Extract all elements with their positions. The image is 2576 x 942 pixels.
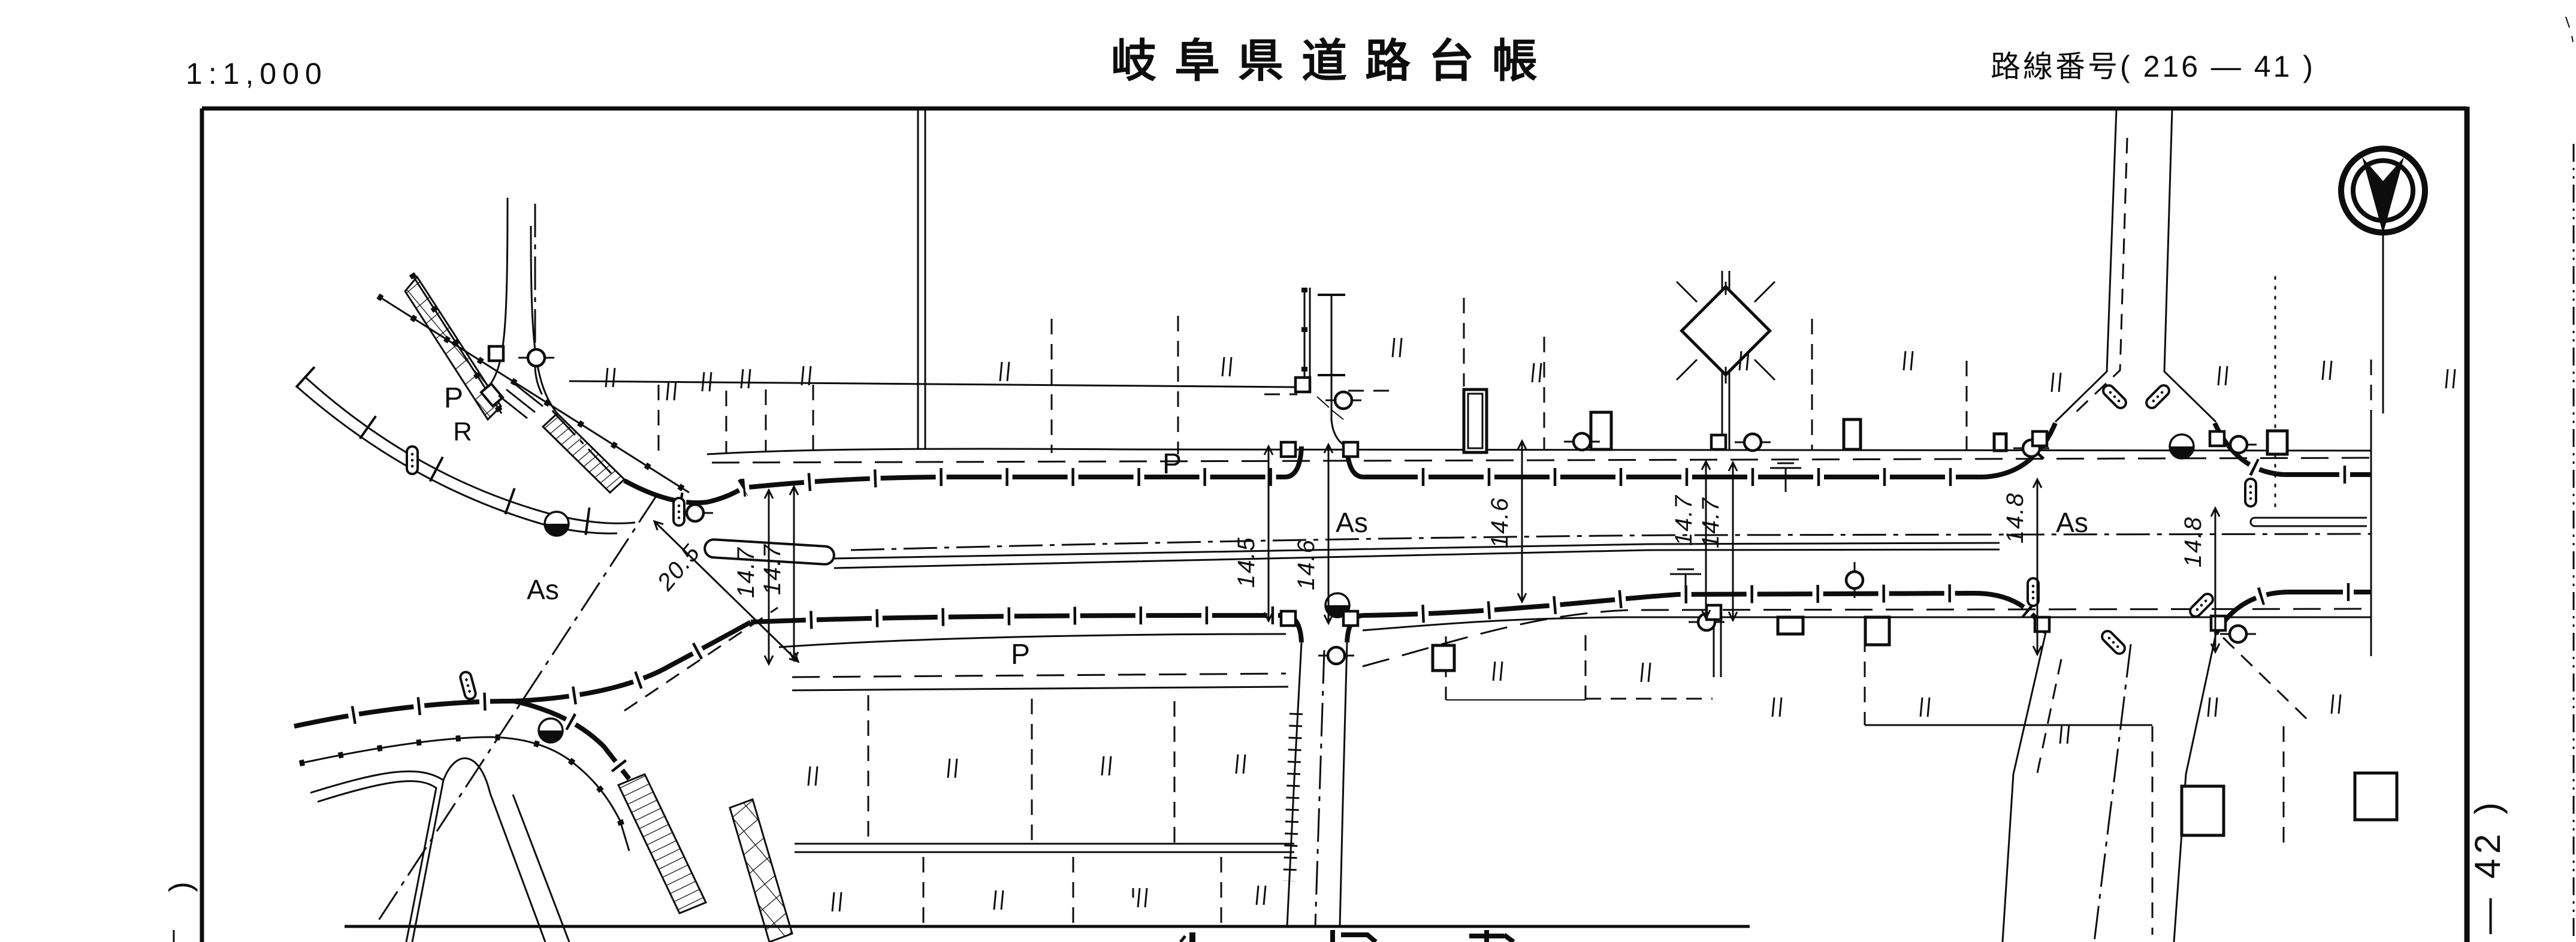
footpath-right-outer [513,795,569,942]
side-road-north-right-edge [1331,294,1347,446]
parcel-double-tick-mark [1493,662,1502,681]
surface-type-label: As [1336,507,1368,538]
pill-symbol [459,671,476,700]
surface-type-label: P [1011,639,1030,671]
page-title: 岐阜県道路台帳 [1111,36,1556,87]
culvert-diamond-symbol [1677,282,1775,384]
elevation-section: 14.5 [1233,446,1273,621]
elevation-value-label: 14.6 [1487,497,1513,548]
square-symbol [1295,378,1310,392]
junction-west [296,198,778,921]
parcel-double-tick-mark [1138,888,1147,907]
road-ledger-sheet: { "header": { "scale_label": "1:1,000", … [0,0,2576,942]
parcel-double-tick-mark [667,381,676,400]
parcel-double-tick-mark [2446,369,2455,388]
sidewalk-edge-bottom-west [779,634,1286,647]
cross-road-down-inner-dash [2037,659,2061,773]
parcel-double-tick-mark [994,890,1003,910]
side-road-north [1304,288,1347,446]
surface-type-label: P [444,382,463,414]
square-symbol [2210,431,2224,446]
southwest-branch [300,737,792,942]
building-outline [2182,786,2224,835]
strip-top-line-west [792,687,1288,690]
surface-type-label: As [527,574,559,605]
square-symbol [1343,442,1358,457]
road-centerline [851,534,2371,550]
route-number-label: 路線番号( 216 — 41 ) [1991,50,2315,83]
curb-junction-arc-ticks [514,622,751,701]
building-outline [1433,645,1454,671]
elevation-value-label: 14.7 [733,547,759,598]
parcel-double-tick-mark [2218,366,2227,385]
square-symbol [1281,611,1295,626]
half-circle-symbol [539,718,563,742]
sheet-number-note: — 42 ) [2468,798,2508,934]
cross-road-down-centerline [2094,644,2131,942]
parcel-double-tick-mark [1641,663,1650,682]
parcel-double-tick-mark [741,369,750,388]
footpath-apex-arc [443,758,490,793]
parcel-double-tick-mark [2323,361,2332,380]
north-arrow-icon [2362,157,2404,234]
building-outline [1865,617,1889,645]
half-circle-symbol [545,512,569,536]
steps-band [618,774,706,913]
parcel-double-tick-mark [2052,373,2061,392]
scale-label: 1:1,000 [186,57,328,90]
footpath-right-inner [490,793,545,942]
curb-bottom-mid [1363,593,1971,615]
square-symbol [489,346,503,361]
surface-type-label: R [453,417,472,446]
road-ownership-dash-top [712,458,2371,463]
upper-strip-dash [1264,391,1396,394]
square-symbol [2033,431,2047,446]
parcel-double-tick-mark [1257,886,1266,905]
parcel-double-tick-mark [948,759,957,778]
side-road-south-right-edge [1340,642,1347,926]
parcel-double-tick-mark [2332,695,2341,714]
surface-type-label: P [1162,448,1182,480]
side-road-south-centerline [1315,650,1324,926]
sw-fence-squares [300,737,629,851]
pill-symbol [2144,383,2171,410]
cross-road-up-left-edge [2055,109,2116,422]
parcel-double-tick-mark [1920,698,1929,717]
parcel-double-tick-mark [808,766,817,786]
curb-sw-approach-ticks [294,701,514,726]
circle-stem-symbol [1735,434,1771,451]
elevation-section: 14.6 [1293,445,1333,623]
elevation-value-label: 14.8 [2002,492,2028,544]
pill-symbol [674,498,684,526]
elevation-value-label: 14.7 [1671,494,1697,546]
curb-top-west [624,477,1286,503]
parcel-double-tick-mark [2208,698,2217,717]
curb-sw-descent [514,701,629,779]
building-outline [1994,434,2006,451]
cross-road-down-left-edge [2003,633,2046,942]
road-boundary-top [707,449,2371,454]
left-margin-paren: ( [168,881,203,892]
frame-speckle [2566,17,2573,42]
north-arrow [2341,149,2425,413]
elevation-section: 14.7 [759,487,798,660]
parcel-double-tick-mark [832,892,841,911]
surface-type-label: As [2056,507,2088,538]
curb-junction-arc [514,622,751,701]
parcel-structure [569,109,2152,852]
curb-sw-approach [294,701,514,726]
parcel-double-tick-mark [1904,351,1913,370]
upper-strip-line [569,381,1297,387]
building-outline [1844,419,1861,449]
median-island-east [2251,518,2367,526]
parcel-double-tick-mark [1102,756,1111,775]
parcel-double-tick-mark [1236,754,1245,774]
parcel-double-tick-mark [2060,724,2069,744]
pill-symbol [2101,383,2128,410]
curb-sw-descent-ticks [514,701,629,779]
parcel-double-tick-mark [1393,338,1402,357]
sw-crosshatch-band [730,799,792,942]
elevation-value-label: 20.5 [652,539,706,596]
building-outline [2355,773,2397,820]
elevation-value-label: 14.6 [1293,539,1319,590]
footpath-left-inner [318,781,436,942]
square-symbol [1343,611,1358,626]
pill-symbol [2100,629,2127,656]
median-line-lower [834,549,2000,568]
bottom-cut-text-fragments [1133,888,1514,942]
circle-stem-symbol [518,349,554,366]
half-circle-symbol [2170,434,2194,458]
parcel-double-tick-mark [1222,357,1231,376]
elevation-value-label: 14.7 [1698,497,1724,548]
side-road-north-right-edge-crossticks [1331,294,1347,446]
elevation-value-label: 14.7 [759,544,786,595]
pill-symbol [2245,479,2256,506]
square-symbol [1711,435,1726,449]
header: 1:1,000 岐阜県道路台帳 路線番号( 216 — 41 ) [186,36,2315,90]
cross-road-corner-dash [2223,638,2307,719]
map-annotations: 14.714.714.514.614.614.714.714.814.820.5… [407,277,2455,935]
parcel-double-tick-mark [1000,362,1009,381]
pill-symbol [407,446,418,474]
parcel-double-tick-mark [1532,363,1541,382]
building-outline [1778,617,1803,634]
building-outline [2267,431,2287,454]
parcel-double-tick-mark [606,368,615,387]
square-symbol [1281,442,1295,457]
parcel-double-tick-mark [1772,698,1781,717]
elevation-section: 14.6 [1487,441,1526,602]
building-outline [1591,412,1611,449]
square-symbol [2211,616,2225,630]
elevation-value-label: 14.5 [1233,536,1260,588]
side-road-south-left-edge [1287,642,1301,926]
cross-road-up-right-edge [2164,109,2216,422]
elevation-value-label: 14.8 [2180,516,2206,567]
side-road-south [1287,642,1347,926]
map-canvas: 1:1,000 岐阜県道路台帳 路線番号( 216 — 41 ) [0,0,2576,942]
median-line-upper [834,543,2000,558]
road-ownership-dash-bottom-west [792,674,1286,677]
nw-step-dashes [499,384,543,418]
cross-road-up-inner-dash [2074,138,2127,413]
